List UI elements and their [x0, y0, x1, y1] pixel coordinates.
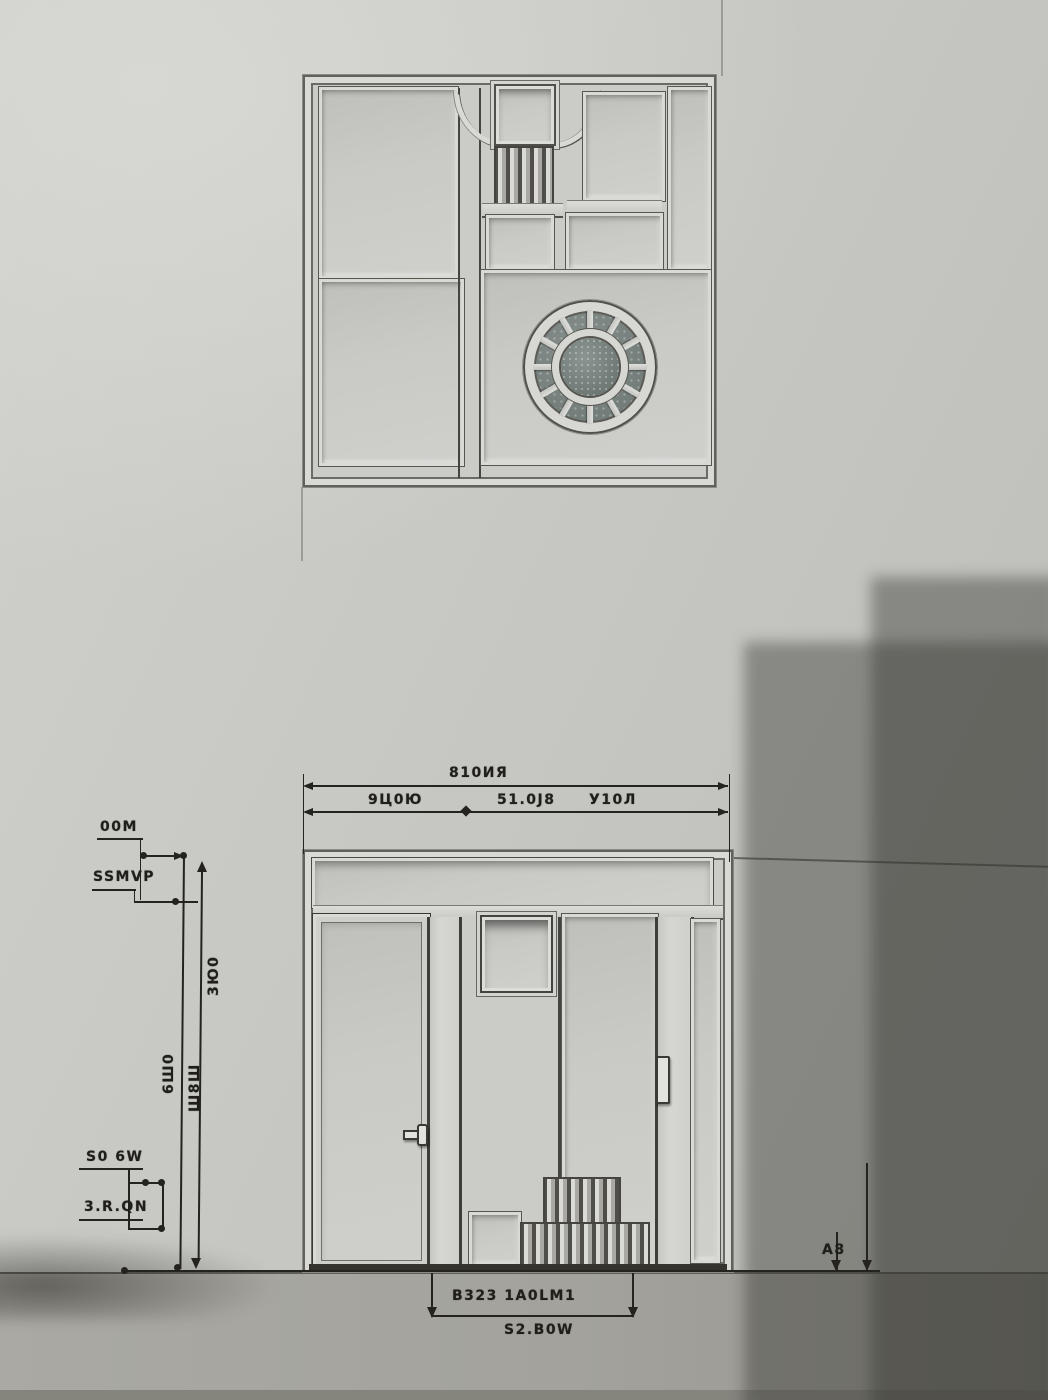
left-lower-label-a: S0 6W	[86, 1149, 143, 1165]
vent-grille-lower	[520, 1222, 650, 1270]
vert-dim-label-c: Ш8Ш	[187, 1063, 203, 1112]
left-label-a-underline	[97, 838, 143, 840]
baseline-arrowhead	[831, 1260, 841, 1271]
upper-stile-gap-left2	[479, 88, 481, 478]
leader-line-2	[134, 901, 198, 903]
extension-line-mid	[301, 487, 303, 561]
bottom-dim-arrowhead	[628, 1307, 638, 1318]
door-right-handle	[656, 1056, 670, 1104]
extension-line-top	[721, 0, 723, 76]
left-lower-label-b: 3.R.QN	[84, 1199, 148, 1215]
upper-panel-right-a	[586, 95, 662, 198]
dim-arrowhead	[718, 808, 728, 816]
rosette-window	[523, 300, 657, 434]
ornament-square	[499, 89, 551, 141]
leader-line-1	[144, 855, 178, 857]
left-lower-a-underline	[79, 1168, 143, 1170]
ornament-rail	[482, 203, 563, 218]
dim-top-total-line	[305, 785, 728, 787]
baseline-arrowhead	[862, 1260, 872, 1271]
leader-dot	[172, 898, 179, 905]
storefront-facade	[303, 850, 733, 1272]
upper-panel-right-narrow	[671, 90, 708, 268]
bottom-total-label: S2.B0W	[504, 1322, 574, 1338]
right-offset-label: A8	[822, 1242, 846, 1258]
ornament-slat-grille	[494, 146, 554, 207]
dim-extension-right	[729, 774, 730, 862]
bottom-width-label: B323 1A0LM1	[452, 1288, 576, 1304]
vert-dim-label-b: 6Ш0	[161, 1053, 177, 1094]
upper-gap-horizontal	[482, 269, 708, 271]
dim-top-seg3-label: У10Л	[589, 792, 637, 808]
dim-top-segments-line	[305, 811, 728, 813]
vent-grille-upper	[543, 1177, 621, 1226]
center-gap-line	[558, 917, 562, 1179]
vert-dim-line-1	[179, 855, 185, 1269]
door-left-knob	[417, 1124, 428, 1146]
mullion-stile-left	[427, 917, 462, 1266]
dim-arrowhead	[303, 808, 313, 816]
dim-top-seg1-label: 9Ц0Ю	[368, 792, 423, 808]
left-label-b: SSMVP	[93, 869, 155, 885]
left-lower-b-underline	[79, 1219, 143, 1221]
upper-panel-right-b	[569, 216, 660, 268]
left-label-a: 00M	[100, 819, 138, 835]
door-left-leaf	[316, 917, 427, 1266]
dim-top-total-label: 810ИЯ	[449, 765, 508, 781]
bottom-dim-line	[431, 1315, 634, 1317]
dim-arrowhead	[303, 782, 313, 790]
vert-dim-arrow-down	[191, 1258, 201, 1269]
tie-dot	[142, 1179, 149, 1186]
transom-panel	[315, 861, 710, 905]
upper-relief-panel	[303, 75, 716, 487]
rosette-glass-disc	[561, 338, 619, 396]
elevation-photo: 810ИЯ 9Ц0Ю 51.0Ј8 У10Л 00M SSMVP 3Ю0 6Ш0…	[0, 0, 1048, 1400]
baseline-dot	[121, 1267, 128, 1274]
ground-edge-strip	[0, 1390, 1048, 1400]
ground-baseline	[122, 1270, 880, 1272]
upper-panel-center-small	[489, 218, 551, 268]
vert-dim-label-a: 3Ю0	[206, 956, 222, 996]
dim-extension-left	[303, 774, 304, 854]
vert-dim-arrow-up	[197, 861, 207, 872]
right-extension-v	[866, 1163, 868, 1270]
corner-shadow-blob	[0, 1234, 280, 1320]
dim-arrowhead	[718, 782, 728, 790]
left-label-b-underline	[92, 889, 136, 891]
vert-dim-dot-top	[180, 852, 187, 859]
right-narrow-panel	[694, 922, 717, 1260]
upper-panel-bottom-left	[322, 282, 461, 463]
dim-tick-diamond	[460, 805, 471, 816]
bottom-dim-arrowhead	[427, 1307, 437, 1318]
upper-rail-right	[567, 200, 662, 216]
upper-panel-top-left	[322, 90, 455, 276]
datum-line-right	[733, 857, 1048, 868]
left-lower-tie-v	[162, 1182, 164, 1230]
grille-side-panel	[472, 1215, 518, 1264]
center-inset-pane	[485, 920, 548, 988]
upper-stile-gap-left	[458, 88, 460, 478]
dim-top-seg2-label: 51.0Ј8	[497, 792, 556, 808]
